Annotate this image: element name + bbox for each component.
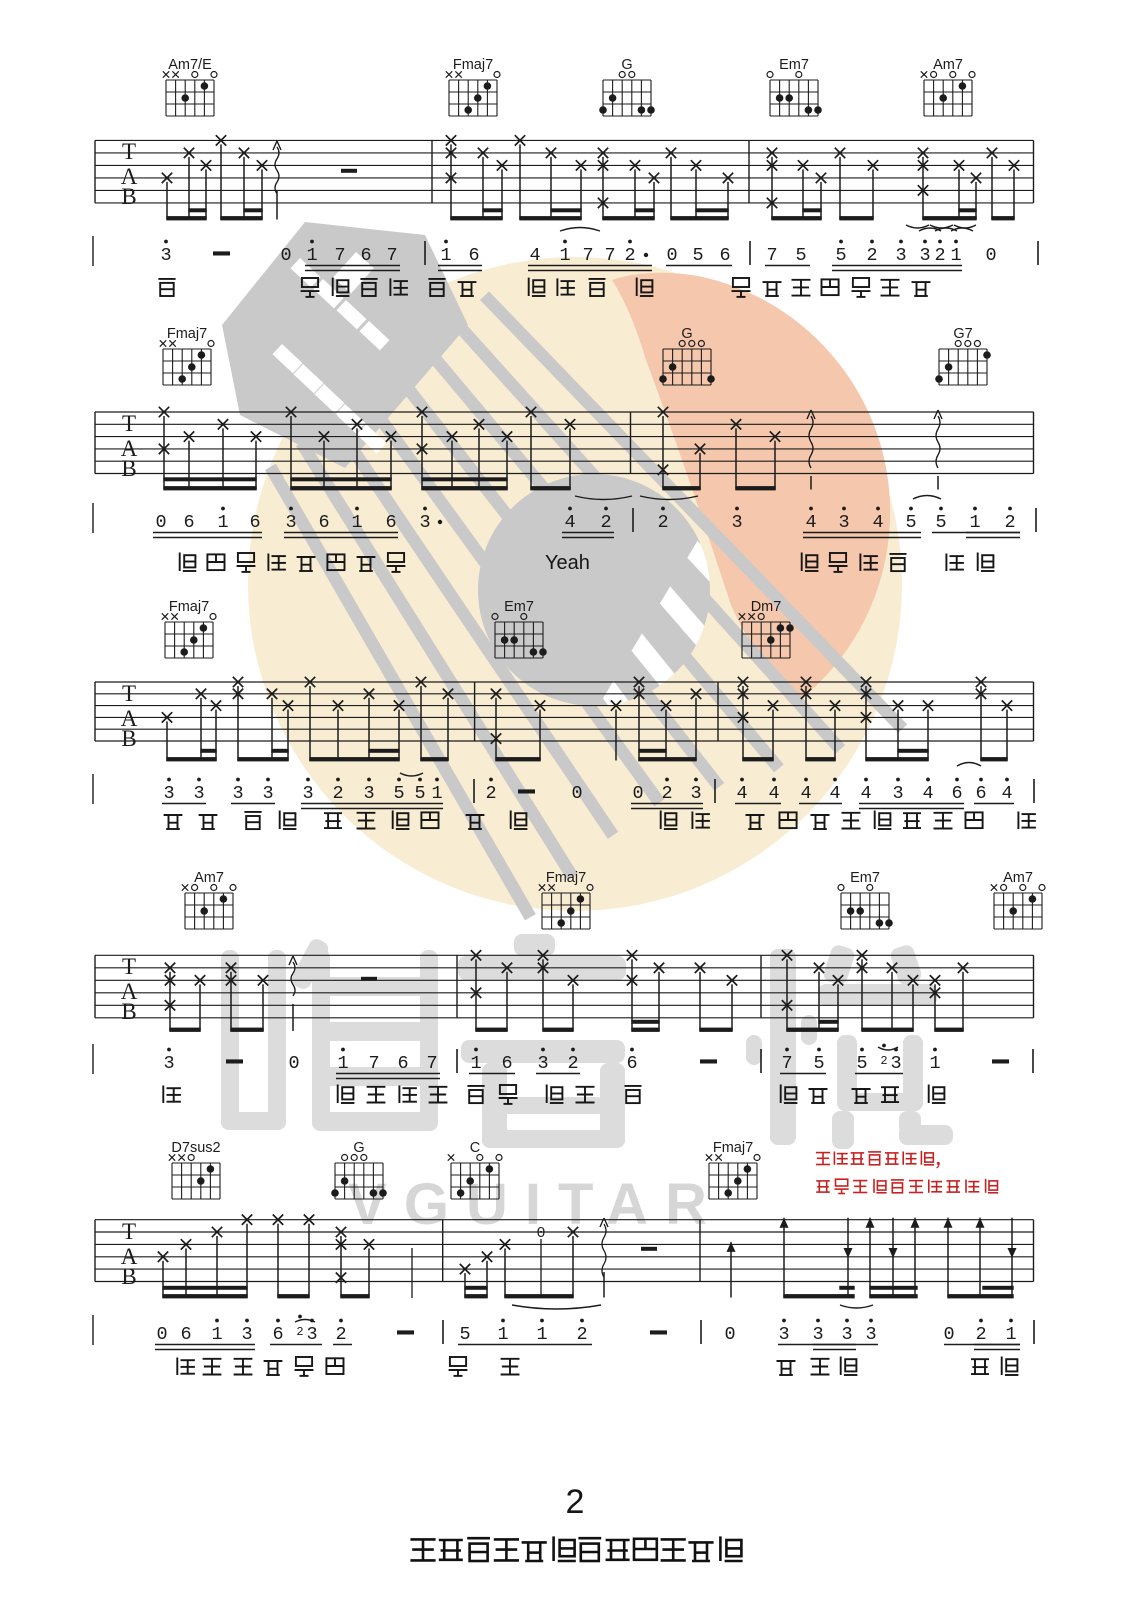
svg-text:1: 1: [950, 245, 961, 266]
svg-text:6: 6: [975, 783, 986, 804]
svg-text:6: 6: [719, 245, 730, 266]
svg-text:2: 2: [332, 783, 343, 804]
svg-text:1: 1: [1005, 1324, 1016, 1345]
svg-text:Fmaj7: Fmaj7: [713, 1140, 753, 1156]
svg-text:6: 6: [626, 1053, 637, 1074]
svg-text:0: 0: [943, 1324, 954, 1345]
svg-text:0: 0: [155, 512, 166, 533]
svg-text:Am7: Am7: [194, 870, 224, 886]
svg-text:B: B: [121, 456, 136, 481]
svg-text:Em7: Em7: [779, 57, 809, 73]
svg-text:2: 2: [975, 1324, 986, 1345]
svg-text:3: 3: [895, 245, 906, 266]
svg-text:1: 1: [211, 1324, 222, 1345]
svg-text:Am7/E: Am7/E: [168, 57, 212, 73]
svg-text:Fmaj7: Fmaj7: [453, 57, 493, 73]
svg-text:6: 6: [385, 512, 396, 533]
svg-text:6: 6: [318, 512, 329, 533]
svg-text:Yeah: Yeah: [545, 552, 590, 574]
svg-text:3: 3: [890, 1053, 901, 1074]
svg-text:3: 3: [306, 1324, 317, 1345]
svg-text:5: 5: [905, 512, 916, 533]
svg-text:B: B: [121, 184, 136, 209]
svg-text:3: 3: [865, 1324, 876, 1345]
svg-text:3: 3: [838, 512, 849, 533]
svg-text:4: 4: [800, 783, 811, 804]
svg-text:T: T: [122, 954, 136, 979]
svg-text:4: 4: [1001, 783, 1012, 804]
svg-text:0: 0: [536, 1225, 545, 1242]
svg-text:T: T: [122, 411, 136, 436]
svg-text:3: 3: [302, 783, 313, 804]
svg-text:5: 5: [935, 512, 946, 533]
svg-text:1: 1: [559, 245, 570, 266]
svg-text:2: 2: [661, 783, 672, 804]
svg-text:7: 7: [426, 1053, 437, 1074]
svg-text:3: 3: [163, 783, 174, 804]
svg-text:1: 1: [306, 245, 317, 266]
svg-text:5: 5: [414, 783, 425, 804]
svg-text:Am7: Am7: [933, 57, 963, 73]
svg-text:3: 3: [537, 1053, 548, 1074]
svg-text:7: 7: [368, 1053, 379, 1074]
svg-text:1: 1: [470, 1053, 481, 1074]
svg-text:6: 6: [180, 1324, 191, 1345]
svg-text:T: T: [122, 1219, 136, 1244]
svg-text:2: 2: [485, 783, 496, 804]
svg-text:3: 3: [241, 1324, 252, 1345]
svg-text:2: 2: [335, 1324, 346, 1345]
svg-text:D7sus2: D7sus2: [171, 1140, 220, 1156]
svg-text:3: 3: [232, 783, 243, 804]
svg-text:C: C: [470, 1140, 480, 1156]
svg-text:5: 5: [813, 1053, 824, 1074]
svg-text:T: T: [122, 681, 136, 706]
svg-text:2: 2: [624, 245, 635, 266]
svg-text:1: 1: [969, 512, 980, 533]
svg-text:3: 3: [690, 783, 701, 804]
svg-text:2: 2: [296, 1325, 303, 1339]
svg-text:4: 4: [829, 783, 840, 804]
svg-text:Dm7: Dm7: [751, 599, 782, 615]
svg-text:4: 4: [922, 783, 933, 804]
svg-text:2: 2: [934, 245, 945, 266]
svg-text:0: 0: [156, 1324, 167, 1345]
svg-text:Em7: Em7: [850, 870, 880, 886]
svg-text:4: 4: [860, 783, 871, 804]
svg-text:5: 5: [393, 783, 404, 804]
svg-text:2: 2: [880, 1054, 887, 1068]
svg-text:0: 0: [666, 245, 677, 266]
svg-text:Fmaj7: Fmaj7: [167, 326, 207, 342]
svg-text:0: 0: [985, 245, 996, 266]
svg-text:3: 3: [778, 1324, 789, 1345]
svg-text:5: 5: [459, 1324, 470, 1345]
svg-text:2: 2: [567, 1053, 578, 1074]
svg-text:B: B: [121, 726, 136, 751]
svg-text:5: 5: [795, 245, 806, 266]
svg-text:3: 3: [892, 783, 903, 804]
svg-text:3: 3: [160, 245, 171, 266]
svg-text:B: B: [121, 1264, 136, 1289]
svg-text:Am7: Am7: [1003, 870, 1033, 886]
svg-text:3: 3: [285, 512, 296, 533]
svg-text:4: 4: [736, 783, 747, 804]
svg-text:0: 0: [280, 245, 291, 266]
svg-text:2: 2: [576, 1324, 587, 1345]
svg-text:0: 0: [571, 783, 582, 804]
svg-text:3: 3: [812, 1324, 823, 1345]
svg-text:G: G: [353, 1140, 364, 1156]
svg-text:6: 6: [272, 1324, 283, 1345]
svg-text:T: T: [122, 139, 136, 164]
svg-text:G7: G7: [953, 326, 972, 342]
svg-text:Fmaj7: Fmaj7: [546, 870, 586, 886]
svg-text:1: 1: [440, 245, 451, 266]
svg-text:1: 1: [929, 1053, 940, 1074]
svg-text:2: 2: [866, 245, 877, 266]
svg-text:7: 7: [334, 245, 345, 266]
svg-text:2: 2: [657, 512, 668, 533]
svg-text:4: 4: [768, 783, 779, 804]
svg-text:6: 6: [249, 512, 260, 533]
svg-text:1: 1: [337, 1053, 348, 1074]
svg-text:1: 1: [431, 783, 442, 804]
svg-text:5: 5: [856, 1053, 867, 1074]
svg-text:7: 7: [582, 245, 593, 266]
svg-text:4: 4: [805, 512, 816, 533]
svg-text:3: 3: [363, 783, 374, 804]
svg-text:3: 3: [731, 512, 742, 533]
svg-text:3: 3: [419, 512, 430, 533]
svg-text:6: 6: [360, 245, 371, 266]
svg-text:6: 6: [397, 1053, 408, 1074]
svg-text:0: 0: [632, 783, 643, 804]
svg-text:1: 1: [351, 512, 362, 533]
svg-text:1: 1: [536, 1324, 547, 1345]
svg-text:Fmaj7: Fmaj7: [169, 599, 209, 615]
svg-text:1: 1: [217, 512, 228, 533]
svg-text:6: 6: [951, 783, 962, 804]
svg-text:G: G: [681, 326, 692, 342]
svg-text:2: 2: [566, 1483, 585, 1521]
svg-text:1: 1: [497, 1324, 508, 1345]
svg-text:6: 6: [468, 245, 479, 266]
svg-text:2: 2: [1004, 512, 1015, 533]
svg-text:B: B: [121, 999, 136, 1024]
svg-text:5: 5: [835, 245, 846, 266]
svg-text:0: 0: [724, 1324, 735, 1345]
svg-text:3: 3: [262, 783, 273, 804]
svg-text:5: 5: [692, 245, 703, 266]
svg-text:3: 3: [193, 783, 204, 804]
svg-text:7: 7: [781, 1053, 792, 1074]
svg-text:3: 3: [919, 245, 930, 266]
svg-text:7: 7: [386, 245, 397, 266]
svg-text:6: 6: [501, 1053, 512, 1074]
svg-text:4: 4: [872, 512, 883, 533]
svg-text:7: 7: [604, 245, 615, 266]
svg-text:4: 4: [529, 245, 540, 266]
svg-text:Em7: Em7: [504, 599, 534, 615]
svg-text:0: 0: [288, 1053, 299, 1074]
svg-text:3: 3: [163, 1053, 174, 1074]
svg-text:7: 7: [766, 245, 777, 266]
svg-text:3: 3: [841, 1324, 852, 1345]
svg-text:4: 4: [564, 512, 575, 533]
svg-text:6: 6: [183, 512, 194, 533]
svg-text:2: 2: [600, 512, 611, 533]
svg-text:G: G: [621, 57, 632, 73]
